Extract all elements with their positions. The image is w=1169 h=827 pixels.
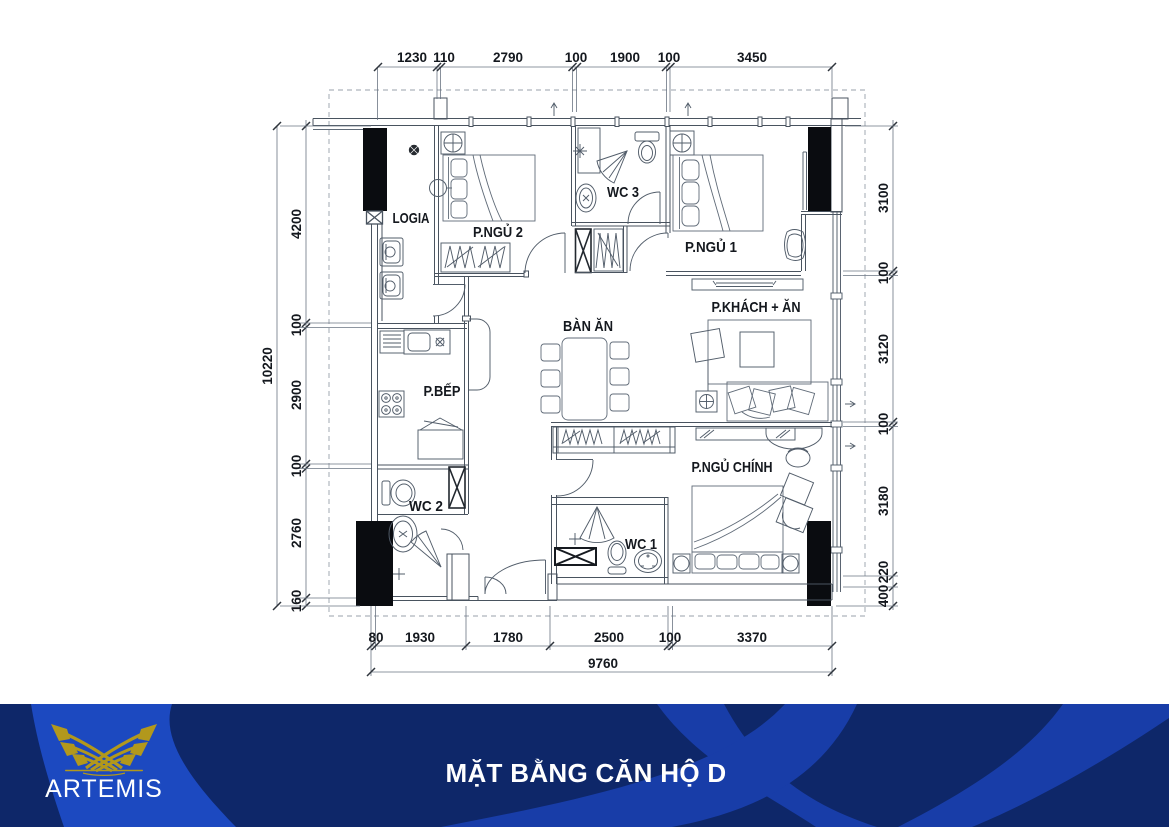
svg-text:160: 160	[289, 590, 304, 613]
svg-text:400: 400	[876, 585, 891, 608]
svg-text:ARTEMIS: ARTEMIS	[45, 775, 163, 803]
svg-text:1900: 1900	[610, 50, 640, 65]
svg-text:110: 110	[433, 50, 455, 65]
svg-text:4200: 4200	[289, 209, 304, 239]
svg-text:2500: 2500	[594, 630, 624, 645]
svg-text:10220: 10220	[260, 347, 275, 385]
svg-text:100: 100	[876, 413, 891, 436]
svg-text:1930: 1930	[405, 630, 435, 645]
svg-text:P.NGỦ 2: P.NGỦ 2	[473, 223, 523, 241]
svg-text:P.NGỦ CHÍNH: P.NGỦ CHÍNH	[692, 458, 773, 476]
svg-text:100: 100	[289, 455, 304, 478]
svg-text:LOGIA: LOGIA	[393, 210, 430, 227]
svg-text:2900: 2900	[289, 380, 304, 410]
svg-text:80: 80	[368, 630, 383, 645]
svg-text:1230: 1230	[397, 50, 427, 65]
svg-text:3100: 3100	[876, 183, 891, 213]
svg-text:P.BẾP: P.BẾP	[424, 383, 461, 400]
svg-text:9760: 9760	[588, 656, 618, 671]
svg-text:BÀN ĂN: BÀN ĂN	[563, 318, 613, 335]
svg-text:100: 100	[565, 50, 588, 65]
svg-text:2760: 2760	[289, 518, 304, 548]
svg-text:100: 100	[658, 50, 681, 65]
svg-text:3120: 3120	[876, 334, 891, 364]
svg-text:100: 100	[876, 262, 891, 285]
svg-text:1780: 1780	[493, 630, 523, 645]
svg-text:100: 100	[289, 314, 304, 337]
svg-text:3180: 3180	[876, 486, 891, 516]
svg-text:2790: 2790	[493, 50, 523, 65]
svg-text:3370: 3370	[737, 630, 767, 645]
svg-text:P.KHÁCH + ĂN: P.KHÁCH + ĂN	[712, 299, 801, 316]
svg-text:3450: 3450	[737, 50, 767, 65]
svg-text:P.NGỦ 1: P.NGỦ 1	[685, 238, 737, 256]
svg-text:WC 1: WC 1	[625, 536, 657, 553]
svg-text:WC 3: WC 3	[607, 184, 639, 201]
svg-text:220: 220	[876, 561, 891, 584]
svg-text:100: 100	[659, 630, 682, 645]
svg-text:MẶT BẰNG CĂN HỘ D: MẶT BẰNG CĂN HỘ D	[446, 758, 727, 788]
svg-text:WC 2: WC 2	[409, 498, 443, 515]
